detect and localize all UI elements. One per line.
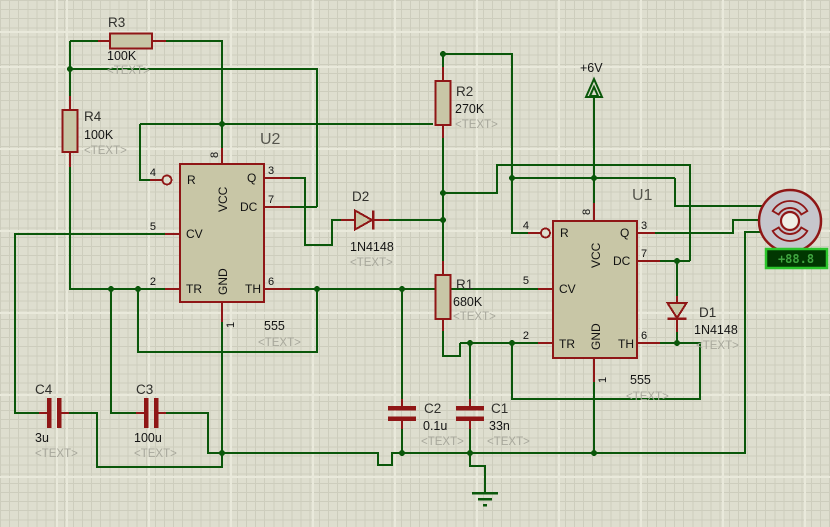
capacitor-c3[interactable] — [144, 398, 159, 428]
u2-pin-name-q: Q — [247, 171, 256, 185]
u1-pin-name-vcc: VCC — [589, 242, 603, 268]
diode-d2[interactable] — [355, 211, 373, 230]
r1-value[interactable]: 680K — [453, 295, 483, 309]
capacitor-c4[interactable] — [47, 398, 62, 428]
motor[interactable] — [759, 190, 821, 252]
u1-pin-num-6: 6 — [641, 330, 647, 342]
d1-ref[interactable]: D1 — [699, 305, 716, 320]
r4-value[interactable]: 100K — [84, 128, 114, 142]
capacitor-c2[interactable] — [388, 406, 416, 421]
c3-text-placeholder: <TEXT> — [134, 448, 177, 460]
r3-ref[interactable]: R3 — [108, 15, 125, 30]
resistor-r1-body[interactable] — [436, 275, 451, 319]
resistor-r4-body[interactable] — [63, 110, 78, 152]
c2-ref[interactable]: C2 — [424, 401, 441, 416]
reset-bubble-u1 — [541, 229, 550, 238]
wire[interactable] — [290, 178, 341, 245]
wire[interactable] — [655, 220, 759, 233]
u1-pin-num-4: 4 — [523, 220, 529, 232]
r1-ref[interactable]: R1 — [456, 277, 473, 292]
u1-ref[interactable]: U1 — [632, 187, 653, 204]
u1-pin-name-cv: CV — [559, 282, 576, 296]
u2-text-placeholder: <TEXT> — [258, 337, 301, 349]
r2-ref[interactable]: R2 — [456, 84, 473, 99]
u2-pin-name-th: TH — [245, 282, 261, 296]
u1-pin-name-dc: DC — [613, 254, 631, 268]
c3-value[interactable]: 100u — [134, 431, 162, 445]
r2-value[interactable]: 270K — [455, 102, 485, 116]
u1-pin-name-th: TH — [618, 337, 634, 351]
wire[interactable] — [166, 41, 222, 148]
u1-pin-name-q: Q — [620, 226, 629, 240]
u2-pin-num-2: 2 — [150, 276, 156, 288]
power-symbol-plus6v[interactable] — [586, 79, 602, 97]
r4-text-placeholder: <TEXT> — [84, 145, 127, 157]
u1-pin-name-tr: TR — [559, 337, 575, 351]
c4-ref[interactable]: C4 — [35, 382, 53, 397]
c1-ref[interactable]: C1 — [491, 401, 508, 416]
u2-pin-name-gnd: GND — [216, 268, 230, 295]
diode-d1[interactable] — [668, 303, 687, 319]
u2-pin-name-tr: TR — [186, 282, 202, 296]
resistor-r2-body[interactable] — [436, 81, 451, 125]
u1-part[interactable]: 555 — [630, 373, 651, 387]
d2-value[interactable]: 1N4148 — [350, 240, 394, 254]
u2-pin-num-4: 4 — [150, 167, 156, 179]
u1-pin-num-7: 7 — [641, 248, 647, 260]
u1-pin-num-5: 5 — [523, 275, 529, 287]
u2-pin-num-8: 8 — [209, 152, 221, 158]
r4-ref[interactable]: R4 — [84, 109, 102, 124]
r1-text-placeholder: <TEXT> — [453, 311, 496, 323]
schematic-canvas: +88.8 +6V R3 100K <TEXT> R4 100K <TEXT> … — [0, 0, 830, 527]
u2-pin-name-r: R — [187, 173, 196, 187]
r2-text-placeholder: <TEXT> — [455, 119, 498, 131]
c2-text-placeholder: <TEXT> — [421, 436, 464, 448]
u1-pin-num-2: 2 — [523, 330, 529, 342]
u1-pin-num-1: 1 — [597, 377, 609, 383]
d1-value[interactable]: 1N4148 — [694, 323, 738, 337]
d2-ref[interactable]: D2 — [352, 189, 369, 204]
ground-symbol[interactable] — [472, 493, 498, 505]
u1-pin-num-8: 8 — [581, 209, 593, 215]
capacitor-c1[interactable] — [456, 406, 484, 421]
u2-pin-name-dc: DC — [240, 200, 258, 214]
u1-pin-name-r: R — [560, 226, 569, 240]
d2-text-placeholder: <TEXT> — [350, 257, 393, 269]
wire[interactable] — [111, 289, 136, 413]
u2-pin-name-cv: CV — [186, 227, 203, 241]
u2-pin-num-5: 5 — [150, 221, 156, 233]
c3-ref[interactable]: C3 — [136, 382, 153, 397]
motor-shaft — [781, 212, 799, 230]
u2-ref[interactable]: U2 — [260, 131, 281, 148]
wire[interactable] — [443, 331, 460, 356]
u2-pin-num-1: 1 — [225, 322, 237, 328]
u2-pin-num-3: 3 — [268, 165, 274, 177]
d1-text-placeholder: <TEXT> — [696, 340, 739, 352]
wire[interactable] — [443, 54, 512, 178]
u2-pin-num-6: 6 — [268, 276, 274, 288]
u2-part[interactable]: 555 — [264, 319, 285, 333]
rpm-display-value: +88.8 — [778, 252, 814, 266]
u2-pin-num-7: 7 — [268, 194, 274, 206]
c4-text-placeholder: <TEXT> — [35, 448, 78, 460]
c1-text-placeholder: <TEXT> — [487, 436, 530, 448]
u1-pin-name-gnd: GND — [589, 323, 603, 350]
wire[interactable] — [675, 178, 763, 206]
resistor-r3-body[interactable] — [110, 34, 152, 49]
rpm-display[interactable]: +88.8 — [766, 249, 827, 268]
c4-value[interactable]: 3u — [35, 431, 49, 445]
wire[interactable] — [166, 413, 222, 453]
reset-bubble-u2 — [163, 176, 172, 185]
u1-pin-num-3: 3 — [641, 220, 647, 232]
c2-value[interactable]: 0.1u — [423, 419, 447, 433]
u2-pin-name-vcc: VCC — [216, 186, 230, 212]
c1-value[interactable]: 33n — [489, 419, 510, 433]
wire[interactable] — [470, 453, 485, 492]
r3-value[interactable]: 100K — [107, 49, 137, 63]
u1-text-placeholder: <TEXT> — [626, 391, 669, 403]
r3-text-placeholder: <TEXT> — [107, 65, 150, 77]
power-label: +6V — [580, 61, 603, 75]
